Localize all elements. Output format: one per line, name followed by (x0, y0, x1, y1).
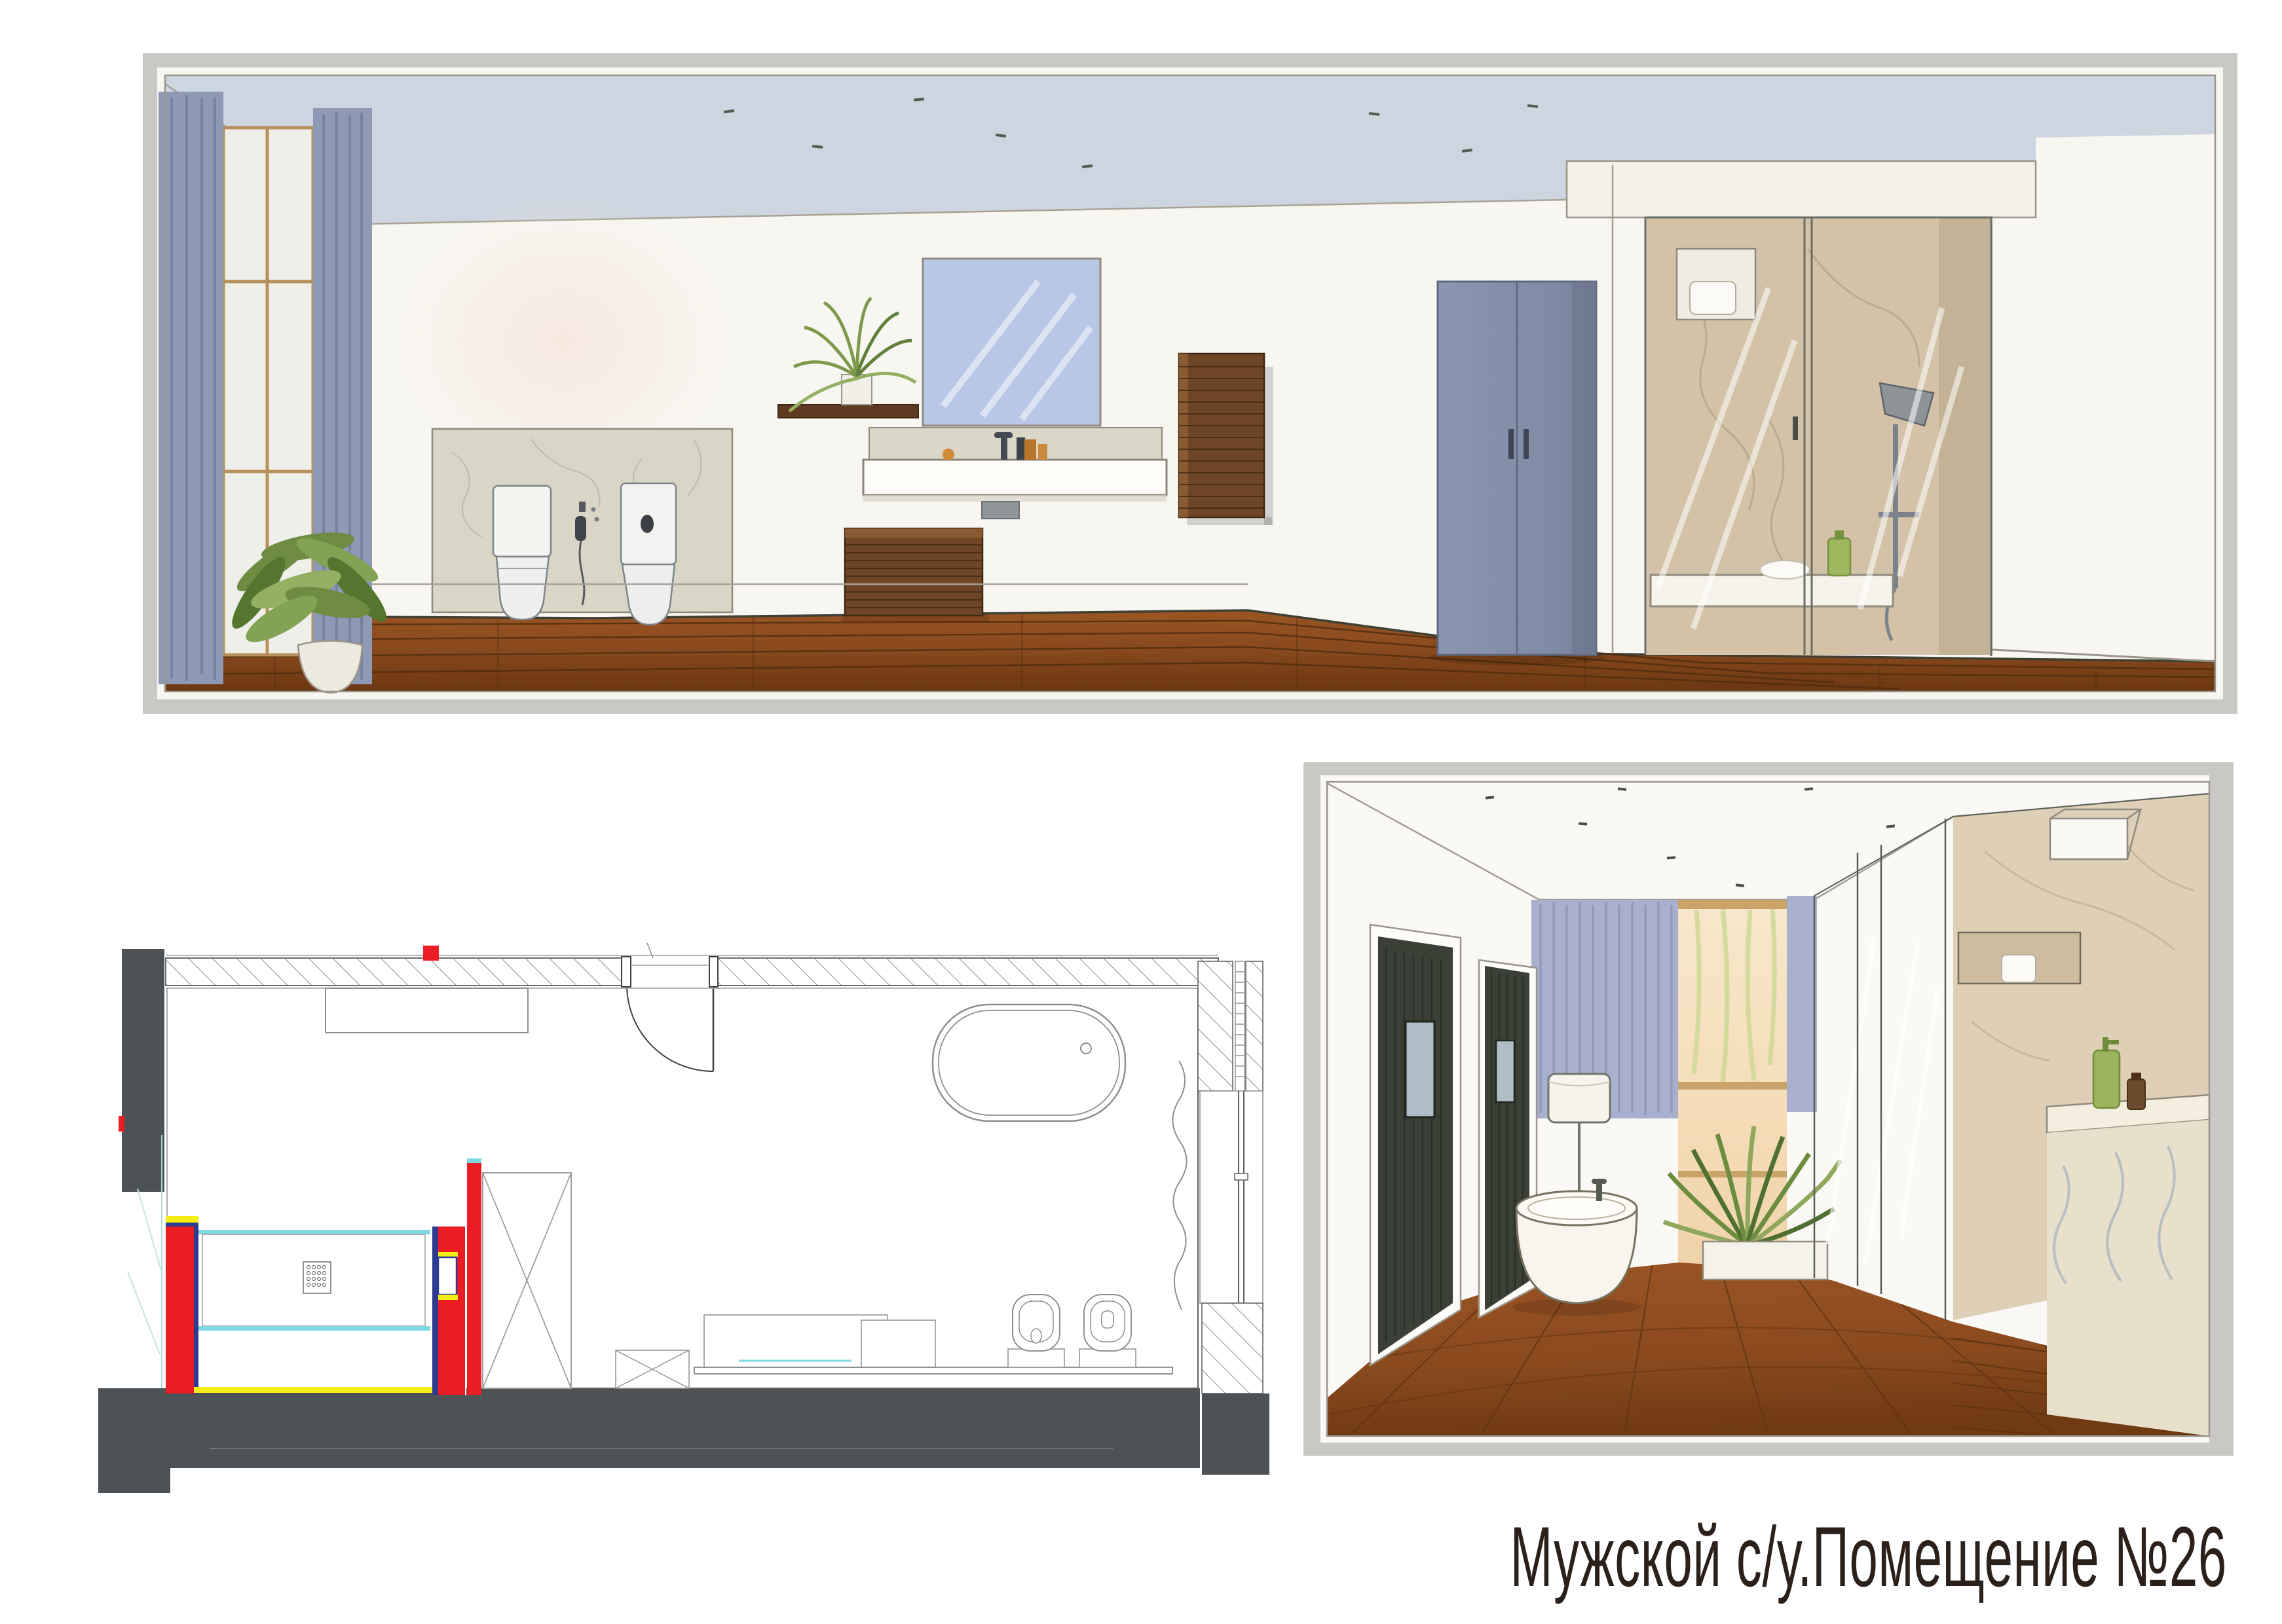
plan-left-wall (119, 949, 167, 1217)
mirror (923, 259, 1100, 426)
wood-shelf (778, 405, 918, 418)
wardrobe-handle (1524, 429, 1529, 459)
elevation-rendering (143, 53, 2237, 714)
brown-bottle (2127, 1079, 2145, 1109)
green-soap-bottle (2093, 1050, 2120, 1108)
niche-towel (2002, 955, 2036, 982)
plan-top-wall (166, 943, 1218, 987)
green-bottle (1828, 538, 1850, 576)
plan-shower-door (194, 1387, 432, 1393)
planter (1703, 1242, 1827, 1280)
plan-bidet (1079, 1295, 1136, 1367)
plan-entry-door (627, 987, 713, 1071)
toilet-area (432, 429, 732, 625)
towel (1690, 282, 1736, 314)
plan-red-marker-top (423, 946, 439, 961)
plan-bottom-wall (98, 1388, 1200, 1493)
wardrobe (1429, 282, 1605, 665)
plan-tall-cabinet (483, 1173, 571, 1388)
shower-soffit (1567, 161, 2036, 217)
toilet (493, 486, 551, 619)
plan-shower (166, 1158, 483, 1397)
design-board-page: { "caption": { "text": "Мужской с/у.Поме… (0, 0, 2282, 1624)
elevation-rendering-panel (143, 53, 2237, 714)
floor-plan-panel (98, 940, 1281, 1493)
vanity-drain (982, 502, 1019, 519)
page-title: Мужской с/у.Помещение №26 (1510, 1510, 2227, 1604)
shower-niche (1958, 932, 2080, 984)
soap-pump (1017, 437, 1025, 460)
vanity-backsplash (869, 428, 1162, 460)
vanity-counter (863, 460, 1167, 495)
floor-plan (98, 940, 1281, 1493)
window-mullion (1678, 1082, 1787, 1090)
plan-window (1200, 1091, 1263, 1303)
door-jamb (709, 957, 718, 987)
plan-ceiling-cove (326, 988, 528, 1033)
door-jamb (622, 957, 631, 987)
amber-bottle (1024, 439, 1036, 460)
plan-shower-drain (303, 1262, 331, 1293)
wardrobe-handle (1508, 429, 1514, 459)
plan-toilet (1008, 1295, 1064, 1367)
glass-door-handle (1793, 416, 1798, 440)
faucet (1001, 436, 1007, 460)
wall-cabinet (1179, 354, 1273, 525)
perspective-rendering-panel (1303, 762, 2234, 1456)
left-wall-doors (1370, 925, 1537, 1365)
bidet (621, 483, 676, 625)
bench-towel (1760, 561, 1810, 579)
door-1-window (1406, 1022, 1434, 1117)
plan-right-wall (1198, 961, 1269, 1475)
stone-bench (2047, 1095, 2209, 1436)
shower-niche (1677, 249, 1755, 320)
plan-shower-glass (198, 1230, 430, 1234)
plan-curtain-symbol (1172, 1061, 1186, 1310)
perspective-rendering (1303, 762, 2234, 1456)
plan-red-marker-left (119, 1116, 124, 1132)
door-2-window (1496, 1041, 1514, 1102)
plan-washer (616, 1350, 689, 1388)
plan-bathtub (933, 1005, 1125, 1121)
orange-fruit (943, 449, 954, 460)
plan-shower-wall-left (166, 1227, 194, 1393)
tub-faucet (1596, 1183, 1602, 1201)
lamp-shade (1548, 1074, 1610, 1122)
plan-shower-niche (438, 1252, 458, 1300)
floor-chest (842, 528, 989, 622)
plan-shower-wall-right (438, 1227, 466, 1395)
